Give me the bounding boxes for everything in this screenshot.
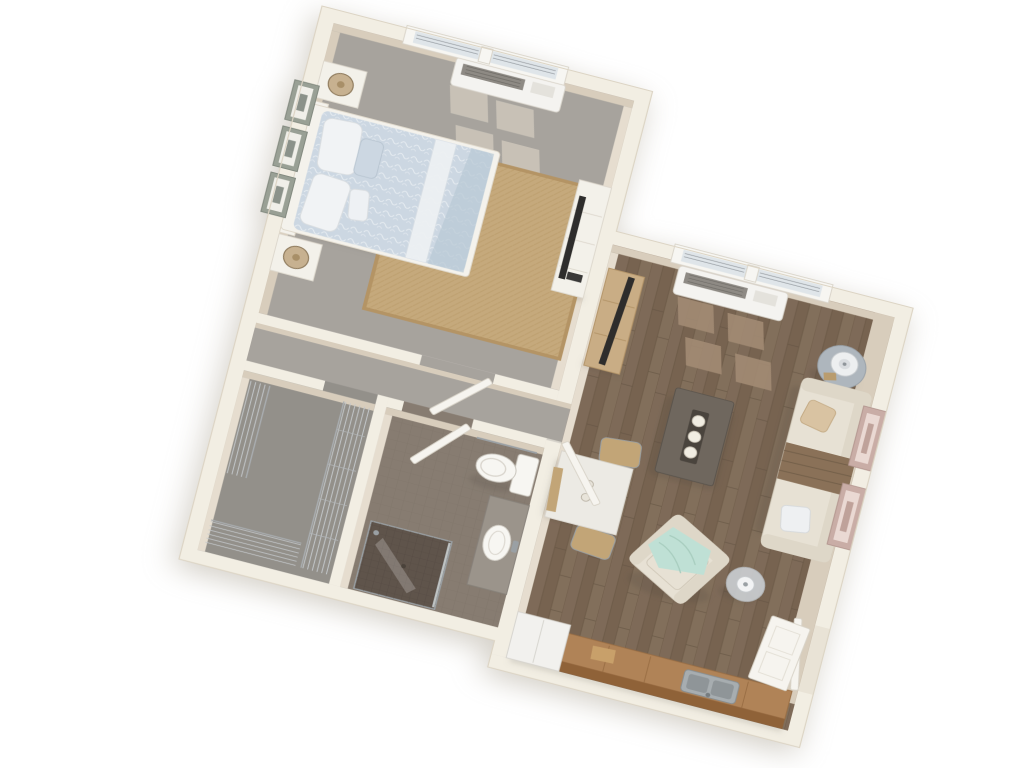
accent-pillow <box>780 505 810 533</box>
floor-plan-rendering: 3D bird's-eye dollhouse rendering of a o… <box>0 0 1024 768</box>
lumbar-pillow <box>348 189 370 222</box>
book <box>824 372 837 380</box>
floor-plan-svg <box>0 0 1024 768</box>
